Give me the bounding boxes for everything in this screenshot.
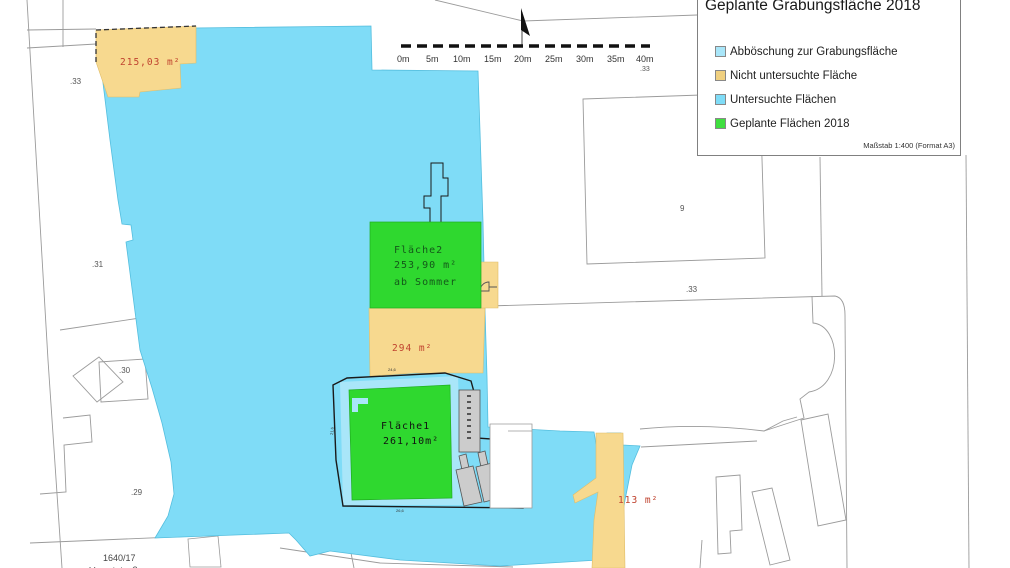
street-line	[640, 417, 797, 431]
parcel-line	[60, 318, 140, 330]
legend-item-abboeschung: Abböschung zur Grabungsfläche	[715, 45, 898, 58]
scale-tick: 10m	[453, 54, 471, 64]
scale-tick: 0m	[397, 54, 410, 64]
building-outline	[716, 475, 742, 554]
legend-swatch-untersucht-icon	[715, 94, 726, 105]
label-area-113: 113 m²	[618, 495, 658, 506]
legend-item-untersucht: Untersuchte Flächen	[715, 93, 836, 106]
legend-item-label: Untersuchte Flächen	[730, 94, 836, 106]
parcel-label: 1640/17	[103, 553, 136, 563]
scale-tick: 15m	[484, 54, 502, 64]
building-outline	[73, 357, 123, 402]
street-line	[966, 155, 969, 568]
legend-swatch-geplant-icon	[715, 118, 726, 129]
dim-label-bottom: 26,6	[396, 508, 405, 513]
parcel-label: .30	[119, 366, 131, 375]
legend-swatch-abboeschung-icon	[715, 46, 726, 57]
area-nicht-untersucht-294	[369, 308, 485, 376]
parcel-line	[27, 44, 96, 48]
apse-outline	[764, 296, 835, 431]
scale-tick: 25m	[545, 54, 563, 64]
parcel-line	[40, 415, 92, 494]
scale-tick: 30m	[576, 54, 594, 64]
parcel-line	[700, 540, 702, 568]
scale-tick: 40m	[636, 54, 654, 64]
label-flaeche2-note: ab Sommer	[394, 277, 457, 288]
scale-tick: 20m	[514, 54, 532, 64]
label-area-294: 294 m²	[392, 343, 432, 354]
legend-item-geplant: Geplante Flächen 2018	[715, 117, 850, 130]
building-outline	[752, 488, 790, 565]
legend-item-label: Abböschung zur Grabungsfläche	[730, 46, 898, 58]
label-flaeche1-size: 261,10m²	[383, 436, 439, 447]
scale-bar: 0m 5m 10m 15m 20m 25m 30m 35m 40m .33	[397, 46, 654, 73]
legend-title-line2: Geplante Grabungsfläche 2018	[705, 0, 920, 15]
dim-label-top: 24,6	[388, 367, 397, 372]
legend-item-label: Geplante Flächen 2018	[730, 118, 850, 130]
site-plan-page: 0m 5m 10m 15m 20m 25m 30m 35m 40m .33 21…	[0, 0, 1010, 568]
label-flaeche1-name: Fläche1	[381, 421, 430, 432]
area-nicht-untersucht-strip	[481, 262, 498, 308]
building-outline	[490, 424, 532, 508]
parcel-line	[27, 0, 62, 568]
parcel-label: .33	[70, 77, 82, 86]
scale-tick: 5m	[426, 54, 439, 64]
parcel-line	[435, 0, 697, 21]
street-line	[641, 441, 757, 447]
parcel-label: .29	[131, 488, 143, 497]
legend-item-nicht-untersucht: Nicht untersuchte Fläche	[715, 69, 857, 82]
scale-note: Maßstab 1:400 (Format A3)	[863, 141, 955, 150]
legend-box: Projekt Domplatz Geplante Grabungsfläche…	[697, 0, 961, 156]
parcel-label: .31	[92, 260, 104, 269]
parcel-label: .33	[640, 66, 650, 73]
scale-tick: 35m	[607, 54, 625, 64]
label-flaeche2-name: Fläche2	[394, 245, 443, 256]
legend-item-label: Nicht untersuchte Fläche	[730, 70, 857, 82]
legend-swatch-nicht-untersucht-icon	[715, 70, 726, 81]
parcel-label: 9	[680, 204, 685, 213]
parcel-line	[27, 29, 96, 30]
label-flaeche2-size: 253,90 m²	[394, 260, 457, 271]
building-outline	[801, 414, 846, 526]
street-line	[820, 157, 822, 296]
parcel-label: .33	[686, 285, 698, 294]
building-outline	[188, 536, 221, 567]
label-area-215: 215,03 m²	[120, 57, 180, 68]
north-arrow-icon	[521, 8, 530, 46]
dim-label-left: 21,6	[329, 426, 335, 435]
